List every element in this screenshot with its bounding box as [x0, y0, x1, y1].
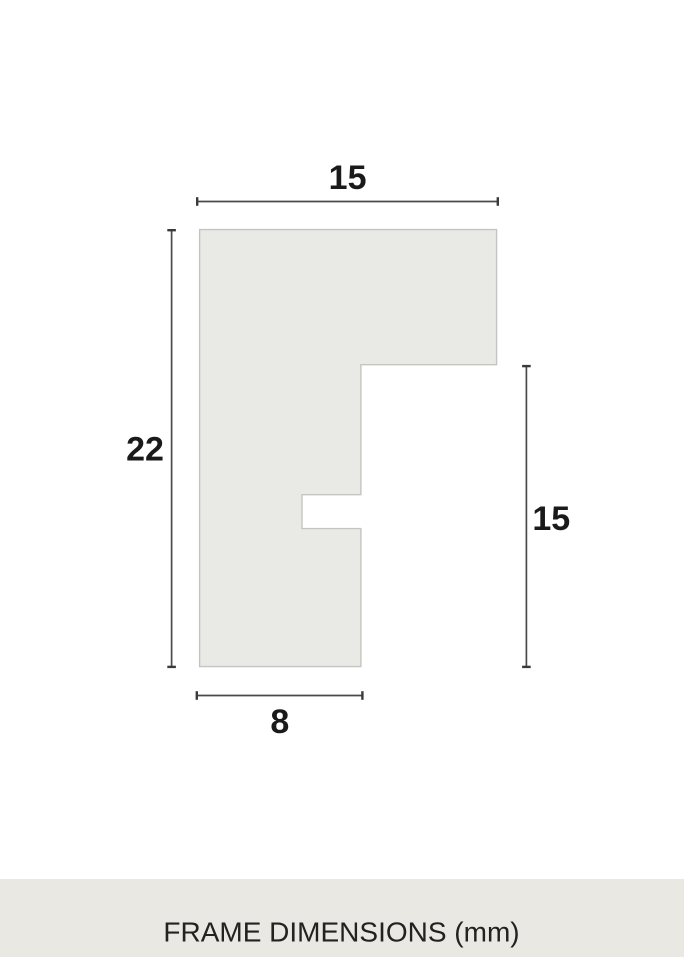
svg-text:8: 8	[270, 703, 289, 741]
svg-text:22: 22	[126, 430, 164, 468]
svg-text:FRAME DIMENSIONS (mm): FRAME DIMENSIONS (mm)	[163, 917, 519, 948]
svg-text:15: 15	[532, 500, 570, 538]
svg-text:15: 15	[329, 159, 367, 197]
